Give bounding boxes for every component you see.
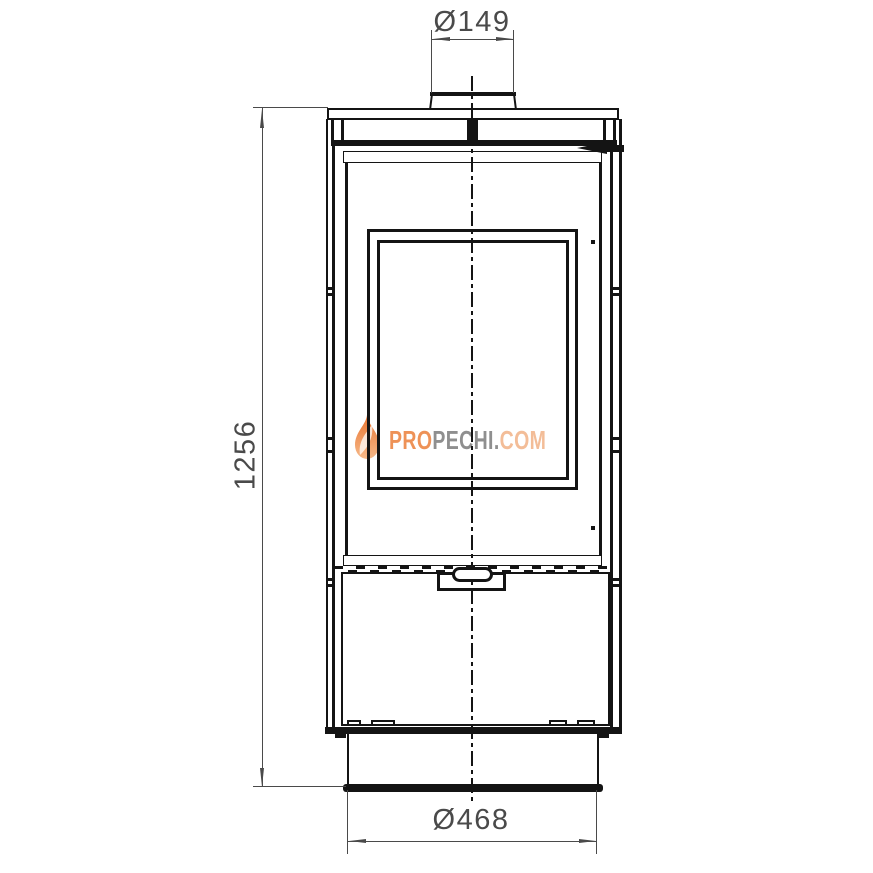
panel-joint-tick	[326, 287, 335, 290]
dim-base-extension-right	[596, 790, 597, 854]
drawer-front-panel	[341, 572, 610, 726]
front-left-edge	[345, 163, 348, 556]
body-left-outer-edge	[326, 119, 328, 729]
dim-base-extension-left	[347, 790, 348, 854]
base-clip	[577, 720, 595, 726]
hinge-pin-top	[591, 240, 595, 244]
panel-joint-tick	[326, 450, 335, 453]
dim-height-line	[262, 108, 263, 787]
front-top-strip	[343, 151, 602, 163]
foot-left	[335, 734, 346, 738]
dim-base-arrow-right	[579, 839, 596, 843]
dim-base-arrow-left	[349, 839, 366, 843]
top-support-left	[331, 119, 344, 141]
flue-collar-top	[430, 92, 516, 96]
panel-joint-tick	[610, 578, 622, 581]
base-clip	[371, 720, 395, 726]
hinge-pin-bottom	[591, 526, 595, 530]
panel-joint-tick	[326, 578, 335, 581]
body-right-outer-edge	[619, 119, 622, 729]
panel-joint-tick	[610, 293, 622, 296]
front-right-edge	[599, 163, 602, 556]
top-support-right	[603, 119, 616, 141]
panel-joint-tick	[610, 287, 622, 290]
panel-joint-tick	[610, 584, 622, 587]
panel-joint-tick	[610, 437, 622, 440]
dim-height-extension-top	[253, 107, 328, 108]
dim-height-label: 1256	[232, 420, 261, 491]
base-plate	[343, 784, 603, 792]
base-clip	[549, 720, 567, 726]
panel-joint-tick	[610, 450, 622, 453]
panel-joint-tick	[326, 437, 335, 440]
flue-collar-right-side	[513, 95, 517, 109]
dim-height-arrow-bottom	[260, 768, 264, 787]
flue-collar-left-side	[429, 95, 433, 109]
pedestal-right-edge	[597, 734, 599, 785]
stove-technical-drawing: PROPECHI.COM	[0, 0, 873, 873]
base-clip	[347, 720, 361, 726]
panel-joint-tick	[326, 584, 335, 587]
drawer-handle	[452, 567, 493, 582]
body-bottom-band	[325, 727, 622, 734]
dim-base-label: Ø468	[433, 806, 510, 835]
firebox-top-band	[331, 140, 617, 146]
panel-joint-tick	[326, 293, 335, 296]
dim-height-arrow-top	[260, 109, 264, 128]
dim-base-line	[348, 841, 597, 842]
pedestal-left-edge	[347, 734, 349, 785]
foot-right	[598, 734, 609, 738]
front-bottom-strip	[343, 555, 602, 566]
dim-flue-label: Ø149	[434, 8, 511, 37]
top-support-center	[467, 119, 478, 141]
dim-height-extension-bottom	[253, 786, 346, 787]
door-glass-frame	[377, 240, 569, 480]
